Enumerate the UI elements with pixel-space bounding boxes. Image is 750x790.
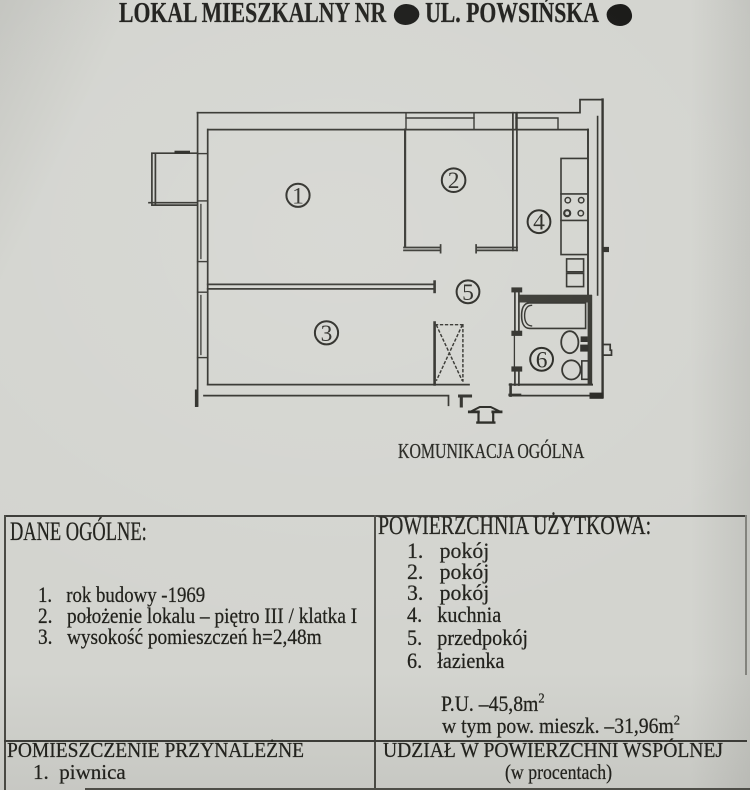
svg-text:5: 5 xyxy=(462,280,474,306)
svg-text:3: 3 xyxy=(321,321,333,347)
svg-text:4: 4 xyxy=(533,210,545,236)
svg-text:6: 6 xyxy=(536,347,548,373)
svg-text:1: 1 xyxy=(292,183,304,209)
svg-text:2: 2 xyxy=(448,168,460,194)
